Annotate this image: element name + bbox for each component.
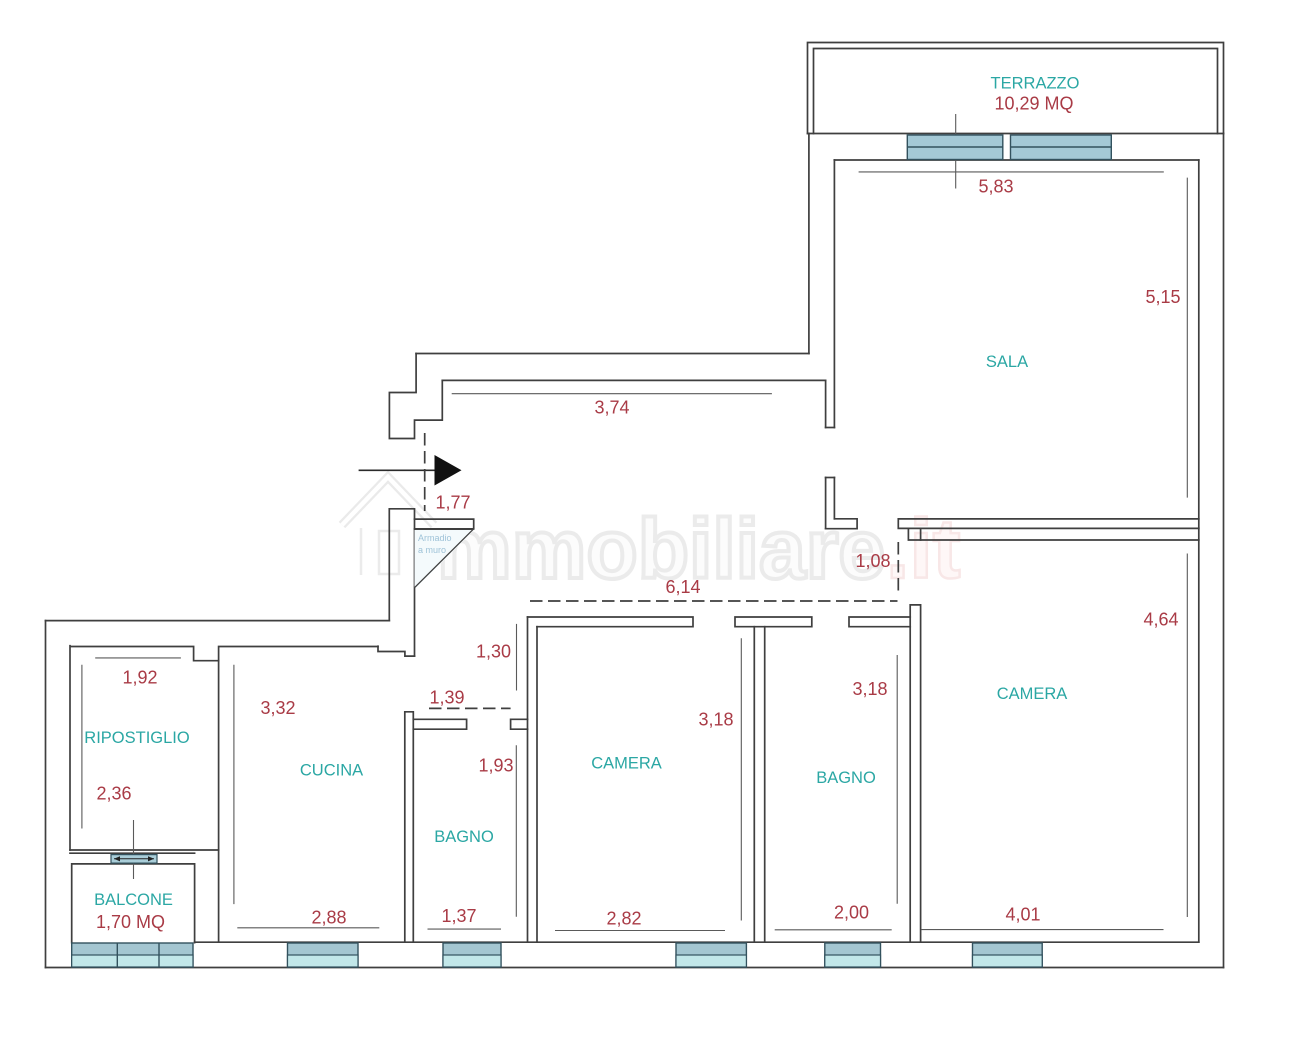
svg-text:1,77: 1,77 — [435, 493, 470, 513]
svg-text:2,36: 2,36 — [96, 784, 131, 804]
svg-text:CUCINA: CUCINA — [300, 762, 363, 780]
svg-text:1,70 MQ: 1,70 MQ — [96, 912, 165, 932]
svg-text:SALA: SALA — [986, 353, 1028, 371]
svg-text:mmobiliare: mmobiliare — [437, 502, 885, 596]
svg-text:.it: .it — [886, 502, 961, 596]
svg-text:CAMERA: CAMERA — [591, 755, 662, 773]
svg-text:2,00: 2,00 — [834, 903, 869, 923]
svg-text:1,37: 1,37 — [441, 906, 476, 926]
svg-text:2,88: 2,88 — [311, 908, 346, 928]
svg-text:1,93: 1,93 — [478, 756, 513, 776]
svg-text:1,92: 1,92 — [122, 668, 157, 688]
svg-text:1,08: 1,08 — [855, 551, 890, 571]
svg-text:BALCONE: BALCONE — [94, 891, 173, 909]
svg-text:6,14: 6,14 — [665, 577, 700, 597]
svg-text:RIPOSTIGLIO: RIPOSTIGLIO — [84, 729, 190, 747]
svg-text:3,32: 3,32 — [260, 698, 295, 718]
svg-text:1,39: 1,39 — [429, 688, 464, 708]
svg-text:3,74: 3,74 — [594, 398, 629, 418]
svg-text:1,30: 1,30 — [476, 642, 511, 662]
svg-text:2,82: 2,82 — [606, 909, 641, 929]
svg-text:BAGNO: BAGNO — [434, 828, 494, 846]
svg-text:4,01: 4,01 — [1005, 905, 1040, 925]
svg-text:10,29 MQ: 10,29 MQ — [994, 94, 1073, 114]
svg-text:CAMERA: CAMERA — [997, 685, 1068, 703]
svg-text:TERRAZZO: TERRAZZO — [991, 75, 1080, 93]
svg-text:3,18: 3,18 — [852, 679, 887, 699]
svg-text:4,64: 4,64 — [1143, 610, 1178, 630]
svg-text:Armadio: Armadio — [418, 533, 452, 543]
svg-text:3,18: 3,18 — [698, 710, 733, 730]
svg-text:BAGNO: BAGNO — [816, 769, 876, 787]
svg-text:a muro: a muro — [418, 545, 446, 555]
svg-text:5,15: 5,15 — [1145, 287, 1180, 307]
svg-text:5,83: 5,83 — [978, 177, 1013, 197]
